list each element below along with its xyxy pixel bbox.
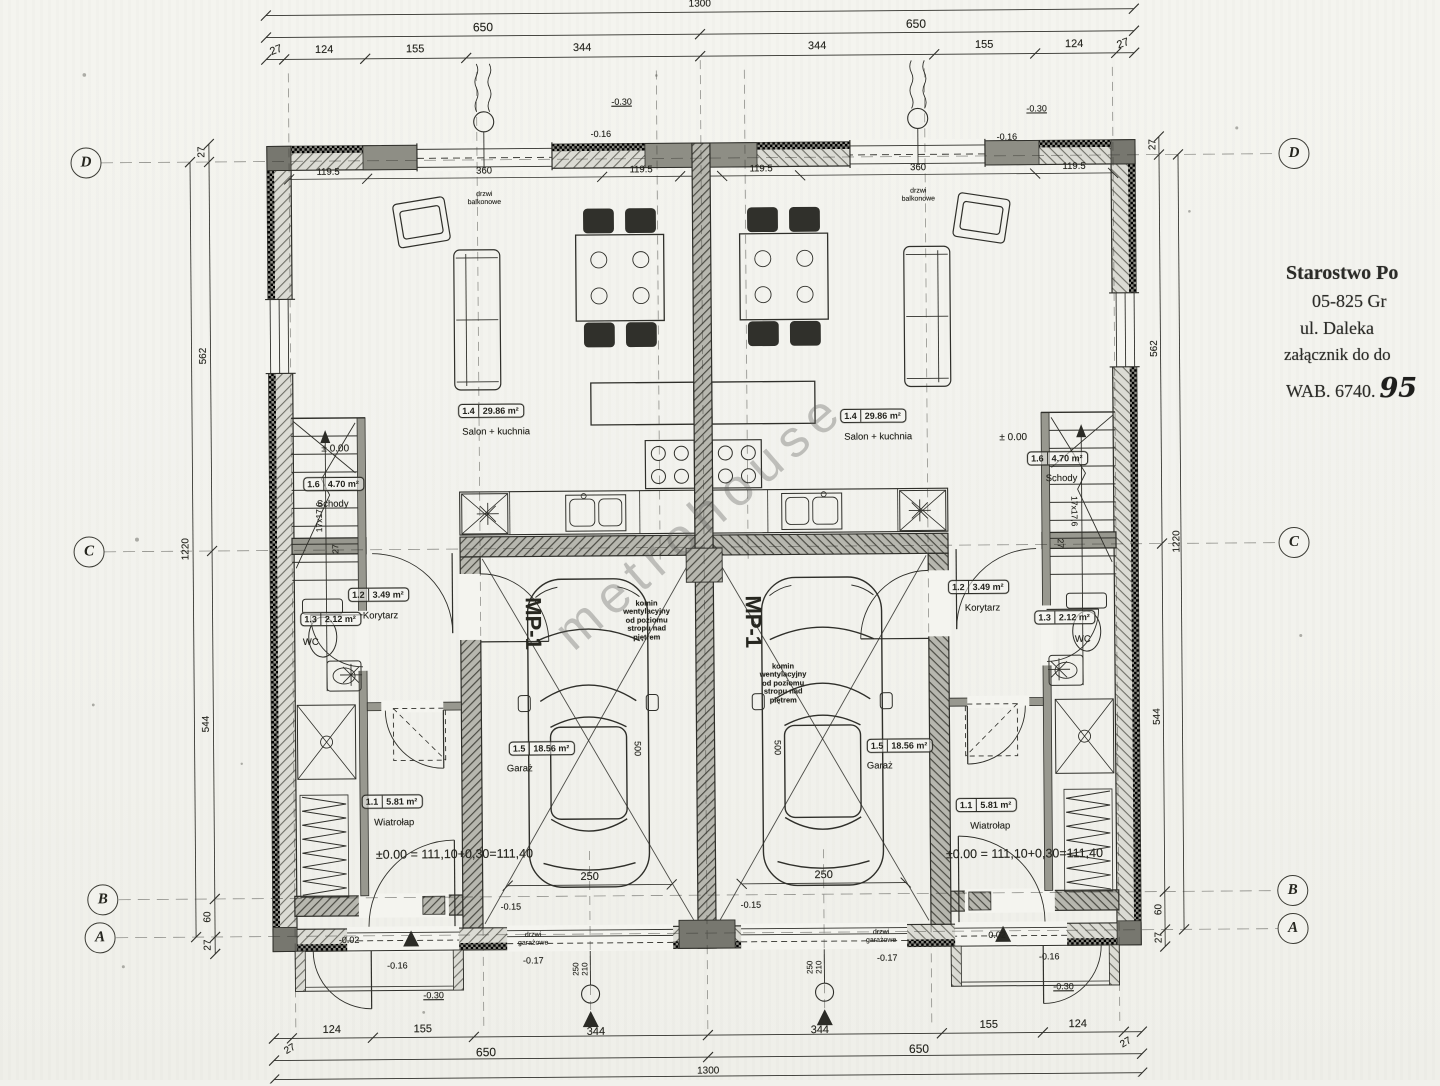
floor-plan-drawing: 13006506502712415534434415512427119.5360… (0, 0, 1440, 1086)
stamp-street: ul. Daleka (1300, 318, 1440, 339)
stamp-office-name: Starostwo Po (1286, 262, 1440, 285)
stamp-handwritten-number: 95 (1380, 373, 1418, 404)
stamp-wab-label: WAB. 6740. (1286, 381, 1376, 401)
office-stamp: Starostwo Po 05-825 Gr ul. Daleka załącz… (1286, 262, 1440, 404)
stamp-postcode: 05-825 Gr (1312, 291, 1440, 312)
scanned-floor-plan: { "watermark": "metrohouse", "stamp": { … (0, 0, 1440, 1080)
plan-linework (0, 0, 1440, 1086)
stamp-attachment-note: załącznik do do (1284, 345, 1440, 365)
stamp-case-number: WAB. 6740.95 (1286, 373, 1440, 404)
